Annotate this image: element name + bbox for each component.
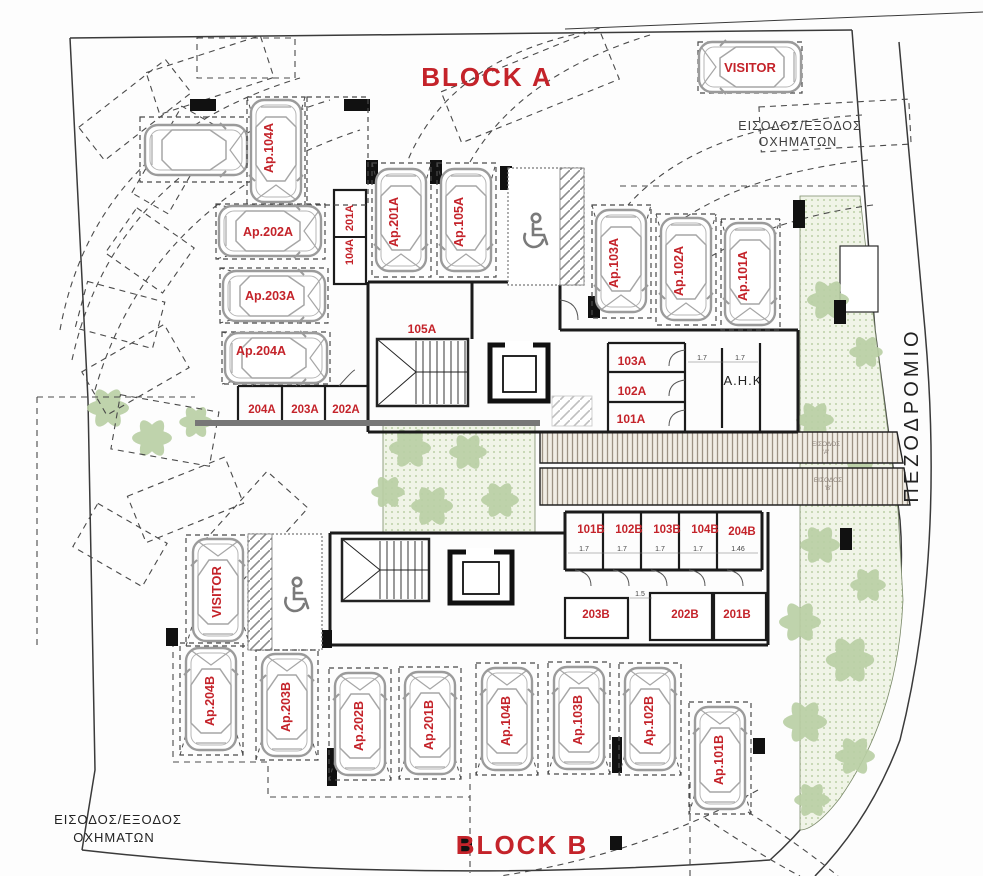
parking-label: Ap.203A: [245, 289, 295, 303]
parking-space-ap202b: Ap.202B: [329, 668, 391, 780]
room-label-102a: 102A: [618, 384, 647, 398]
parking-label: VISITOR: [209, 566, 224, 618]
sidewalk-street-label: ΠΕΖΟΔΡΟΜΙΟ: [901, 327, 923, 502]
parking-label: Ap.201B: [422, 700, 436, 750]
parking-label: Ap.203B: [279, 682, 293, 732]
dim-row-4: 1.7: [693, 546, 703, 553]
site-plan-page: ΕΙΣΟΔΟΣ 'Α' ΕΙΣΟΔΟΣ 'Β': [0, 0, 983, 876]
walkway-b: [540, 468, 910, 505]
parking-label: Ap.104B: [499, 696, 513, 746]
room-label-101a: 101A: [617, 412, 646, 426]
parking-space-unassigned: [140, 117, 253, 182]
road-edge-top: [565, 12, 983, 29]
parking-space-ap102b: Ap.102B: [619, 663, 681, 775]
parking-space-ap102a: Ap.102A: [656, 214, 716, 325]
parking-label: Ap.103A: [607, 238, 621, 288]
room-label-103a: 103A: [618, 354, 647, 368]
parking-label: Ap.204A: [236, 344, 286, 358]
walkway-b-label-2: 'Β': [825, 485, 832, 492]
walkway-a-label-1: ΕΙΣΟΔΟΣ: [812, 441, 840, 448]
room-label-105a: 105A: [408, 322, 437, 336]
room-label-204b: 204B: [728, 526, 756, 538]
room-label-203a: 203A: [291, 404, 319, 416]
dim-row-3: 1.7: [655, 546, 665, 553]
room-label-101b: 101B: [577, 524, 605, 536]
parking-space-ap105a: Ap.105A: [437, 163, 496, 277]
dim-ahk-2: 1.7: [735, 355, 745, 362]
boundary-left: [70, 38, 95, 850]
parking-space-disabled-b: [248, 534, 322, 650]
block-a-title: BLOCK A: [421, 62, 552, 92]
parking-space-ap103a: Ap.103A: [592, 205, 651, 318]
room-label-104b: 104B: [691, 524, 719, 536]
parking-space-ap202a: Ap.202A: [216, 204, 325, 259]
room-label-202b: 202B: [671, 609, 699, 621]
elevator-block-b: [450, 548, 512, 603]
walkway-b-label-1: ΕΙΣΟΔΟΣ: [814, 477, 842, 484]
parking-label: Ap.204B: [203, 676, 217, 726]
room-label-204a: 204A: [248, 404, 276, 416]
dim-row-1: 1.7: [579, 546, 589, 553]
vehicle-entrance-top-line2: ΟΧΗΜΑΤΩΝ: [759, 135, 838, 149]
parking-space-empty: [307, 97, 368, 205]
parking-space-ap103b: Ap.103B: [548, 662, 610, 774]
boundary-top: [70, 30, 852, 38]
parking-label: Ap.202A: [243, 225, 293, 239]
parking-space-ap104b: Ap.104B: [476, 663, 538, 775]
entrance-walkways: ΕΙΣΟΔΟΣ 'Α' ΕΙΣΟΔΟΣ 'Β': [540, 432, 910, 505]
room-label-203b: 203B: [582, 609, 610, 621]
walkway-a: [540, 432, 903, 463]
parking-label: Ap.105A: [452, 197, 466, 247]
block-b-title: BLOCK B: [456, 830, 588, 860]
parking-space-ap201a: Ap.201A: [372, 163, 431, 277]
parking-space-ap204a: Ap.204A: [222, 331, 330, 385]
parking-label: Ap.202B: [352, 701, 366, 751]
parking-label: VISITOR: [724, 60, 776, 75]
boundary-bottom: [82, 850, 770, 871]
parking-label: Ap.104A: [262, 123, 276, 173]
room-label-201a: 201A: [344, 205, 356, 231]
stair-block-b: [342, 539, 429, 601]
dim-ahk-1: 1.7: [697, 355, 707, 362]
room-label-104a: 104A: [344, 239, 356, 265]
parking-label: Ap.103B: [571, 695, 585, 745]
dim-row-5: 1.46: [731, 546, 745, 553]
parking-space-ap104a: Ap.104A: [247, 97, 305, 205]
parking-space-disabled-a: [508, 168, 584, 285]
parking-label: Ap.101A: [736, 251, 750, 301]
site-plan-drawing: ΕΙΣΟΔΟΣ 'Α' ΕΙΣΟΔΟΣ 'Β': [0, 0, 983, 876]
room-label-201b: 201B: [723, 609, 751, 621]
parking-space-ap204b: Ap.204B: [180, 643, 243, 755]
ahk-room-label: A.H.K: [724, 373, 763, 388]
parking-label: Ap.101B: [712, 735, 726, 785]
vehicle-entrance-bottom-line2: ΟΧΗΜΑΤΩΝ: [73, 830, 155, 845]
parking-space-ap201b: Ap.201B: [399, 667, 461, 779]
parking-space-ap101b: Ap.101B: [689, 702, 751, 814]
parking-label: Ap.102A: [672, 246, 686, 296]
parking-label: Ap.102B: [642, 696, 656, 746]
ramp-hatch-a: [552, 396, 592, 426]
dim-row-2: 1.7: [617, 546, 627, 553]
parking-space-visitor-b: VISITOR: [186, 535, 250, 646]
elevator-block-a: [490, 341, 548, 401]
room-label-202a: 202A: [332, 404, 360, 416]
stair-block-a: [377, 339, 468, 406]
parking-space-ap101a: Ap.101A: [721, 219, 780, 330]
vehicle-entrance-bottom-line1: ΕΙΣΟΔΟΣ/ΕΞΟΔΟΣ: [54, 812, 182, 827]
walkway-a-label-2: 'Α': [823, 449, 830, 456]
dim-corridor: 1.5: [635, 591, 645, 598]
vehicle-entrance-top-line1: ΕΙΣΟΔΟΣ/ΕΞΟΔΟΣ: [738, 119, 861, 133]
parking-space-ap203a: Ap.203A: [220, 268, 328, 323]
room-label-103b: 103B: [653, 524, 681, 536]
parking-space-ap203b: Ap.203B: [256, 650, 318, 760]
parking-space-visitor-top: VISITOR: [698, 40, 802, 94]
room-label-102b: 102B: [615, 524, 643, 536]
parking-label: Ap.201A: [387, 197, 401, 247]
